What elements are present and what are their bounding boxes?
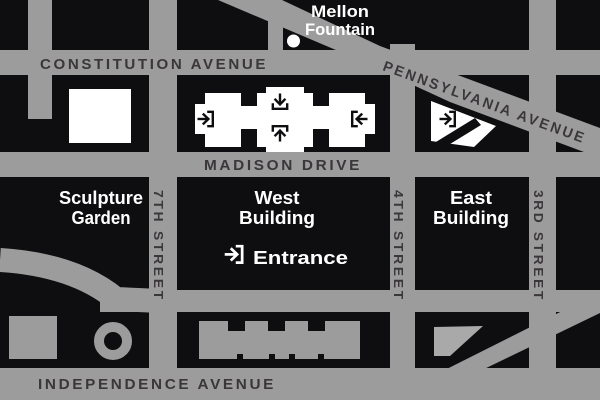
southwest-building-footprint — [9, 316, 57, 359]
mellon-fountain-label-line1: Mellon — [311, 2, 369, 21]
mall-building-footprint — [199, 321, 360, 359]
seventh-street-label: 7TH STREET — [151, 190, 165, 302]
west-building-label-line2: Building — [239, 208, 315, 228]
footprint-tick — [237, 354, 243, 359]
west-pavilion — [205, 93, 241, 147]
mellon-fountain-label-line2: Fountain — [305, 20, 375, 39]
third-street-label: 3RD STREET — [531, 190, 545, 302]
mellon-fountain-dot — [287, 35, 300, 48]
footprint-notch — [268, 321, 285, 331]
footprint-tick — [269, 354, 275, 359]
entrance-label: Entrance — [253, 248, 348, 268]
stair-tab — [257, 93, 266, 107]
west-building-label-line1: West — [255, 188, 300, 208]
sculpture-garden-label-line1: Sculpture — [59, 188, 143, 208]
footprint-notch — [308, 321, 325, 331]
nga-area-map: CONSTITUTION AVENUE MADISON DRIVE INDEPE… — [0, 0, 600, 400]
constitution-avenue-label: CONSTITUTION AVENUE — [40, 57, 268, 73]
footprint-tick — [318, 354, 324, 359]
sculpture-garden-pavilion-footprint — [69, 89, 131, 143]
stair-tab — [304, 93, 313, 107]
rotunda-block — [266, 87, 304, 152]
footprint-tick — [289, 354, 295, 359]
west-building-footprint — [195, 87, 375, 152]
madison-drive-label: MADISON DRIVE — [204, 158, 362, 174]
map-canvas: CONSTITUTION AVENUE MADISON DRIVE INDEPE… — [0, 0, 600, 400]
stair-tab — [257, 129, 266, 147]
stair-tab — [304, 129, 313, 147]
footprint-notch — [228, 321, 245, 331]
independence-avenue-label: INDEPENDENCE AVENUE — [38, 377, 276, 393]
sculpture-garden-label-line2: Garden — [72, 208, 131, 228]
east-building-label-line2: Building — [433, 208, 509, 228]
fourth-street-label: 4TH STREET — [391, 190, 405, 302]
east-building-label-line1: East — [450, 188, 492, 208]
